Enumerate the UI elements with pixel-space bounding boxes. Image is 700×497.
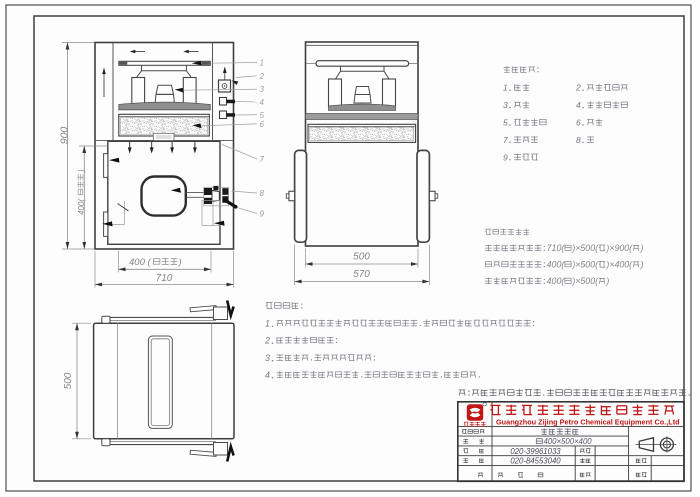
svg-text:): ): [639, 243, 643, 253]
svg-text:2: 2: [259, 72, 265, 81]
svg-text:): ): [639, 260, 643, 270]
svg-text:570: 570: [353, 269, 370, 280]
svg-text:)×500(: )×500(: [571, 260, 599, 270]
svg-text:9: 9: [503, 152, 508, 162]
svg-text:2: 2: [575, 83, 581, 93]
svg-text:2: 2: [264, 336, 270, 346]
svg-text:1: 1: [503, 83, 508, 93]
svg-text:4: 4: [576, 100, 581, 110]
svg-text:7: 7: [260, 155, 265, 164]
svg-text:020-39961033: 020-39961033: [510, 447, 561, 456]
svg-text:710(: 710(: [547, 243, 566, 253]
svg-text:1: 1: [265, 319, 270, 329]
svg-text:)×900(: )×900(: [605, 243, 633, 253]
svg-text:500: 500: [63, 372, 74, 389]
svg-text:400(: 400(: [547, 276, 566, 286]
svg-text:900: 900: [59, 127, 71, 145]
svg-text:7: 7: [503, 135, 508, 145]
svg-text:5: 5: [503, 118, 508, 128]
svg-text:710: 710: [156, 273, 173, 284]
svg-text:400(: 400(: [77, 198, 86, 215]
svg-text:)×400(: )×400(: [605, 260, 633, 270]
svg-text:500: 500: [353, 252, 370, 263]
svg-text:400×500×400: 400×500×400: [544, 437, 593, 446]
svg-text:)×500(: )×500(: [571, 276, 599, 286]
svg-text:400 (: 400 (: [129, 257, 151, 268]
svg-text:3: 3: [265, 353, 270, 363]
svg-text:5: 5: [260, 111, 265, 120]
svg-text:): ): [77, 169, 86, 173]
svg-text:): ): [605, 276, 609, 286]
svg-text:): ): [178, 257, 182, 268]
svg-text:1: 1: [260, 59, 264, 68]
svg-text:8: 8: [260, 189, 265, 198]
svg-text:8: 8: [576, 135, 581, 145]
svg-text:6: 6: [260, 120, 265, 129]
svg-text:)×500(: )×500(: [571, 243, 599, 253]
svg-text:400(: 400(: [547, 260, 566, 270]
svg-text:3: 3: [503, 100, 508, 110]
svg-text:6: 6: [576, 118, 581, 128]
svg-text:4: 4: [265, 370, 270, 380]
svg-text:3: 3: [260, 85, 265, 94]
svg-text:Guangzhou Zijing Petro Chemica: Guangzhou Zijing Petro Chemical Equipmen…: [496, 417, 680, 426]
svg-text:020-84553040: 020-84553040: [510, 457, 561, 466]
svg-text:9: 9: [260, 210, 265, 219]
svg-text:4: 4: [260, 98, 265, 107]
